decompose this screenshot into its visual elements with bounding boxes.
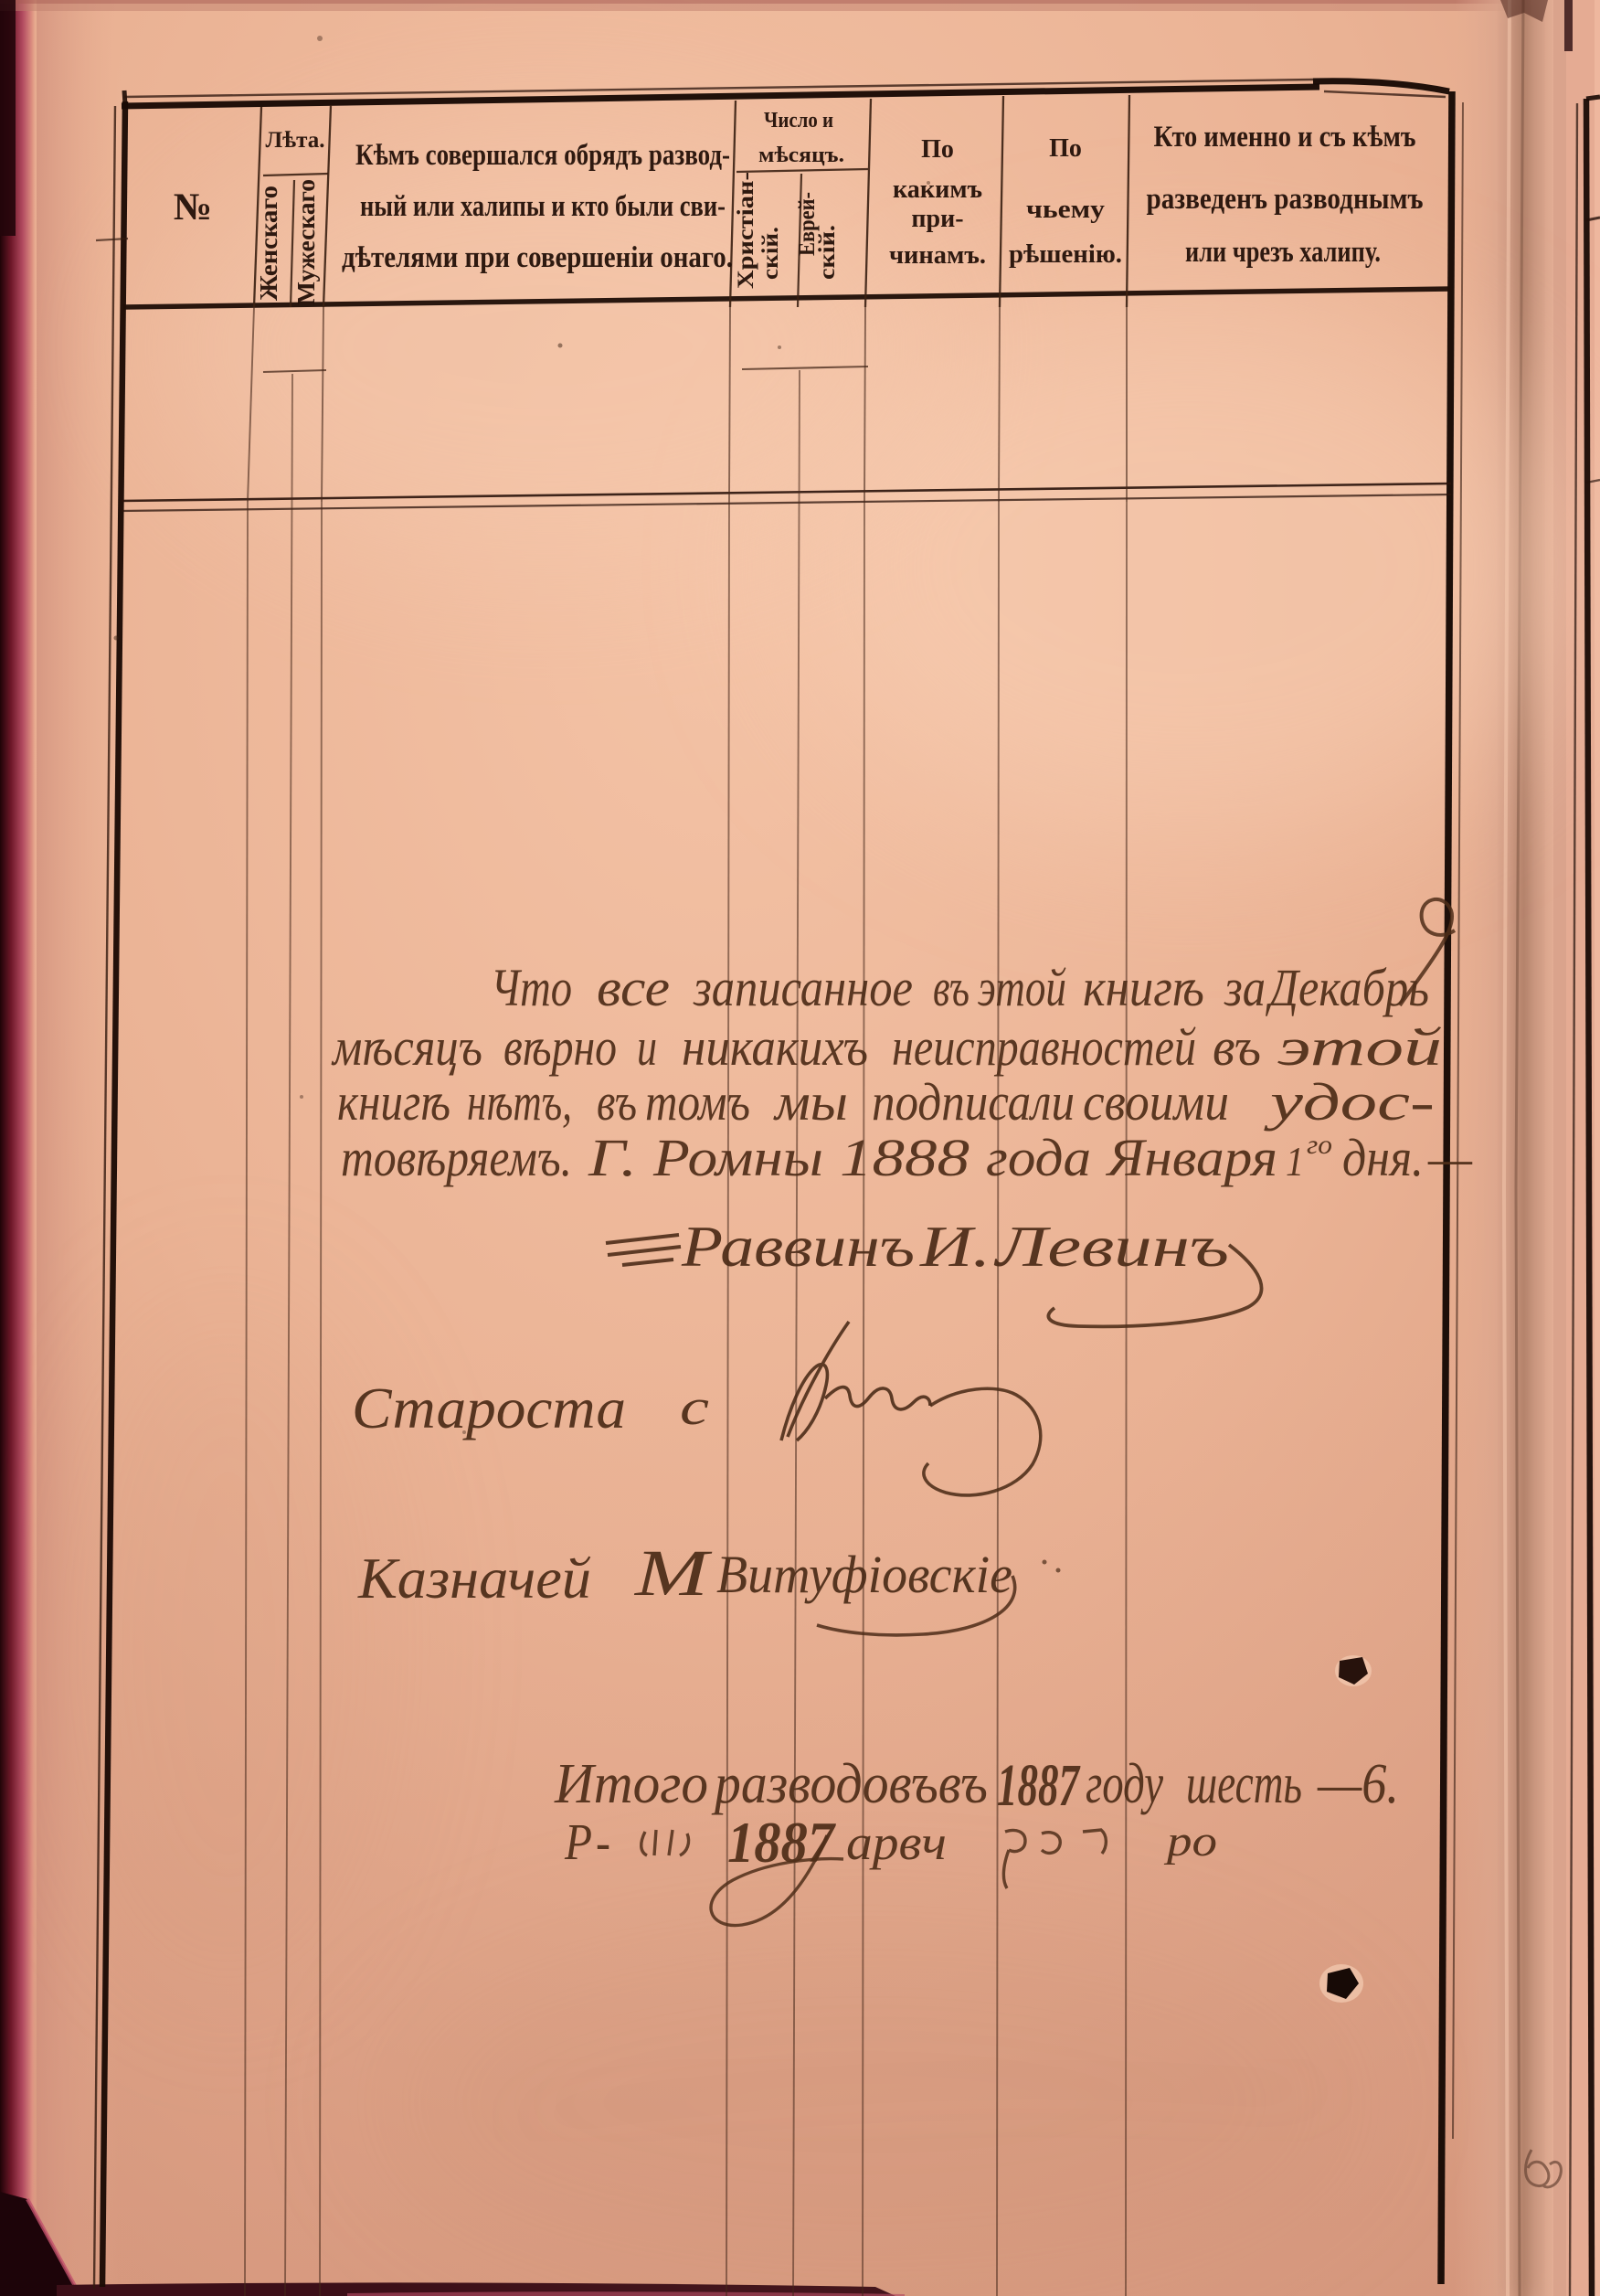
svg-text:Г.: Г. bbox=[588, 1128, 637, 1187]
svg-text:этой: этой bbox=[978, 958, 1066, 1017]
svg-text:ро: ро bbox=[1164, 1817, 1217, 1865]
svg-text:№: № bbox=[174, 186, 212, 229]
svg-text:этой: этой bbox=[1277, 1017, 1442, 1077]
svg-text:все: все bbox=[597, 958, 670, 1017]
svg-text:Кѣмъ совершался обрядъ развод-: Кѣмъ совершался обрядъ развод- bbox=[355, 139, 730, 172]
svg-text:дѣтелями при совершеніи онаго.: дѣтелями при совершеніи онаго. bbox=[342, 241, 733, 274]
svg-text:1888: 1888 bbox=[840, 1128, 970, 1187]
svg-text:и: и bbox=[637, 1017, 657, 1077]
svg-text:Что: Что bbox=[491, 958, 572, 1017]
svg-text:при-: при- bbox=[911, 205, 963, 233]
svg-text:Христіан-: Христіан- bbox=[734, 172, 758, 289]
svg-text:Итого: Итого bbox=[554, 1753, 708, 1815]
svg-text:скій.: скій. bbox=[758, 227, 783, 280]
svg-text:ный или халипы и кто были сви-: ный или халипы и кто были сви- bbox=[360, 190, 726, 223]
svg-text:книгѣ: книгѣ bbox=[1083, 958, 1204, 1017]
svg-text:товѣряемъ.: товѣряемъ. bbox=[341, 1128, 572, 1187]
svg-text:книгѣ: книгѣ bbox=[337, 1072, 450, 1132]
svg-text:чьему: чьему bbox=[1026, 196, 1105, 224]
svg-text:И.: И. bbox=[919, 1214, 991, 1279]
svg-text:мы: мы bbox=[773, 1072, 848, 1132]
svg-text:Р: Р bbox=[564, 1814, 592, 1871]
svg-text:неисправностей: неисправностей bbox=[892, 1017, 1196, 1077]
svg-text:арвч: арвч bbox=[846, 1815, 947, 1870]
svg-text:По: По bbox=[1049, 134, 1082, 163]
svg-text:М: М bbox=[634, 1536, 714, 1610]
svg-text:въ: въ bbox=[597, 1072, 637, 1132]
svg-text:какимъ: какимъ bbox=[893, 175, 982, 204]
svg-text:Кто именно и съ кѣмъ: Кто именно и съ кѣмъ bbox=[1154, 121, 1416, 154]
svg-text:удос-: удос- bbox=[1264, 1072, 1435, 1132]
svg-text:Января: Января bbox=[1106, 1128, 1277, 1187]
svg-text:мѣсяцъ: мѣсяцъ bbox=[331, 1017, 482, 1077]
svg-text:с: с bbox=[680, 1379, 709, 1436]
svg-text:года: года bbox=[986, 1128, 1091, 1187]
svg-text:1887: 1887 bbox=[997, 1752, 1081, 1819]
svg-text:дня.: дня. bbox=[1342, 1128, 1424, 1187]
svg-text:-: - bbox=[596, 1814, 610, 1871]
svg-text:Левинъ: Левинъ bbox=[993, 1214, 1229, 1279]
svg-text:Число и: Число и bbox=[764, 109, 833, 133]
svg-text:году: году bbox=[1086, 1753, 1163, 1815]
svg-text:за: за bbox=[1224, 958, 1266, 1017]
svg-text:разводовъвъ: разводовъвъ bbox=[711, 1753, 988, 1815]
svg-text:Мужескаго: Мужескаго bbox=[292, 179, 320, 305]
svg-text:шесть: шесть bbox=[1186, 1753, 1302, 1815]
svg-text:нѣтъ,: нѣтъ, bbox=[467, 1072, 572, 1132]
svg-text:чинамъ.: чинамъ. bbox=[889, 241, 986, 270]
svg-text:своими: своими bbox=[1083, 1072, 1229, 1132]
svg-text:скій.: скій. bbox=[815, 225, 840, 280]
svg-text:Лѣта.: Лѣта. bbox=[266, 128, 325, 153]
svg-text:рѣшенію.: рѣшенію. bbox=[1009, 240, 1122, 269]
svg-text:или чрезъ халипу.: или чрезъ халипу. bbox=[1185, 236, 1381, 269]
svg-text:томъ: томъ bbox=[645, 1072, 750, 1132]
svg-text:записанное: записанное bbox=[693, 958, 913, 1017]
svg-text:мѣсяцъ.: мѣсяцъ. bbox=[758, 143, 844, 167]
svg-text:подписали: подписали bbox=[872, 1072, 1075, 1132]
svg-text:Раввинъ: Раввинъ bbox=[681, 1214, 915, 1279]
svg-text:го: го bbox=[1307, 1130, 1332, 1160]
svg-text:—6.: —6. bbox=[1317, 1753, 1399, 1815]
svg-text:никакихъ: никакихъ bbox=[682, 1017, 868, 1077]
svg-text:въ: въ bbox=[933, 958, 970, 1017]
svg-text:въ: въ bbox=[1213, 1017, 1261, 1077]
svg-text:вѣрно: вѣрно bbox=[503, 1017, 617, 1077]
svg-text:Староста: Староста bbox=[352, 1376, 626, 1440]
svg-text:Декабрь: Декабрь bbox=[1266, 958, 1429, 1017]
svg-text:Женскаго: Женскаго bbox=[255, 186, 282, 301]
svg-text:Казначей: Казначей bbox=[357, 1546, 591, 1610]
svg-text:Ромны: Ромны bbox=[652, 1128, 823, 1187]
svg-text:Витуфіовскіе: Витуфіовскіе bbox=[716, 1545, 1012, 1604]
svg-text:По: По bbox=[921, 135, 954, 164]
svg-text:—: — bbox=[1427, 1128, 1472, 1187]
svg-text:1: 1 bbox=[1286, 1138, 1304, 1185]
svg-text:разведенъ разводнымъ: разведенъ разводнымъ bbox=[1147, 183, 1424, 216]
